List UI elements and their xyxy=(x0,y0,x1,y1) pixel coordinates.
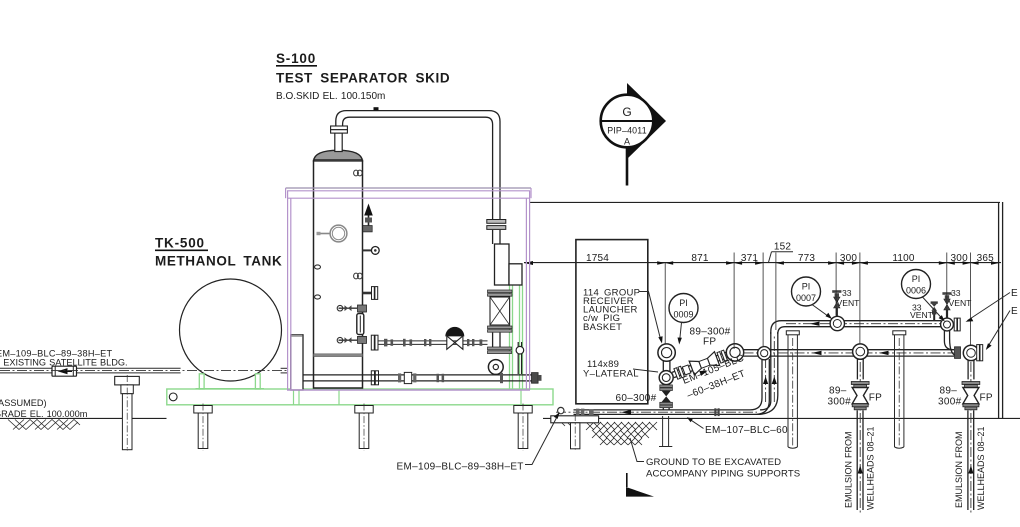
svg-text:371: 371 xyxy=(741,253,759,264)
svg-text:B.O.SKID EL. 100.150m: B.O.SKID EL. 100.150m xyxy=(276,91,385,102)
svg-text:PI: PI xyxy=(679,298,688,308)
svg-text:EM–109–BLC–89–38H–ET: EM–109–BLC–89–38H–ET xyxy=(397,462,524,473)
svg-text:PI: PI xyxy=(912,274,921,284)
svg-text:FP: FP xyxy=(980,393,993,404)
svg-text:BASKET: BASKET xyxy=(583,322,622,333)
svg-text:89–: 89– xyxy=(829,386,847,397)
svg-text:ACCOMPANY PIPING SUPPORTS: ACCOMPANY PIPING SUPPORTS xyxy=(646,469,800,480)
svg-text:PI: PI xyxy=(802,282,811,292)
svg-text:FP: FP xyxy=(703,337,716,348)
svg-text:0007: 0007 xyxy=(796,293,816,303)
svg-text:300: 300 xyxy=(951,253,969,264)
svg-text:60–300#: 60–300# xyxy=(616,393,657,404)
svg-text:152: 152 xyxy=(774,242,792,253)
svg-text:365: 365 xyxy=(977,253,995,264)
svg-text:EMULSION FROM: EMULSION FROM xyxy=(844,431,854,508)
svg-text:WELLHEADS 08–21: WELLHEADS 08–21 xyxy=(976,426,986,510)
svg-text:A: A xyxy=(624,137,630,147)
svg-text:G: G xyxy=(622,105,631,119)
svg-text:METHANOL TANK: METHANOL TANK xyxy=(155,254,282,269)
svg-text:EMULSION FROM: EMULSION FROM xyxy=(954,431,964,508)
svg-text:89–: 89– xyxy=(940,386,958,397)
svg-text:0009: 0009 xyxy=(673,310,693,320)
svg-text:1100: 1100 xyxy=(892,253,915,264)
svg-text:0006: 0006 xyxy=(906,286,926,296)
svg-text:E: E xyxy=(1011,306,1018,317)
svg-text:O EXISTING SATELLITE BLDG.: O EXISTING SATELLITE BLDG. xyxy=(0,358,128,368)
svg-text:33: 33 xyxy=(951,288,961,298)
svg-text:TK-500: TK-500 xyxy=(155,236,205,251)
svg-text:S-100: S-100 xyxy=(276,51,316,66)
svg-text:1754: 1754 xyxy=(586,253,609,264)
svg-text:EM–107–BLC–60: EM–107–BLC–60 xyxy=(705,425,788,436)
svg-text:Y–LATERAL: Y–LATERAL xyxy=(583,369,639,380)
svg-text:FP: FP xyxy=(869,393,882,404)
svg-text:300#: 300# xyxy=(828,397,852,408)
svg-text:GRADE EL. 100.000m: GRADE EL. 100.000m xyxy=(0,409,88,419)
svg-text:PIP–4011: PIP–4011 xyxy=(607,126,647,136)
svg-text:VENT: VENT xyxy=(910,310,934,320)
svg-text:GROUND TO BE EXCAVATED: GROUND TO BE EXCAVATED xyxy=(646,457,781,468)
svg-text:871: 871 xyxy=(691,253,709,264)
svg-text:VENT: VENT xyxy=(837,298,861,308)
svg-text:TEST SEPARATOR SKID: TEST SEPARATOR SKID xyxy=(276,71,450,86)
svg-text:E: E xyxy=(1011,288,1018,299)
svg-text:33: 33 xyxy=(842,288,852,298)
svg-text:300: 300 xyxy=(840,253,858,264)
svg-text:773: 773 xyxy=(798,253,816,264)
svg-text:VENT: VENT xyxy=(949,298,973,308)
svg-text:300#: 300# xyxy=(938,397,962,408)
svg-text:WELLHEADS 08–21: WELLHEADS 08–21 xyxy=(866,426,876,510)
svg-text:(ASSUMED): (ASSUMED) xyxy=(0,398,47,408)
